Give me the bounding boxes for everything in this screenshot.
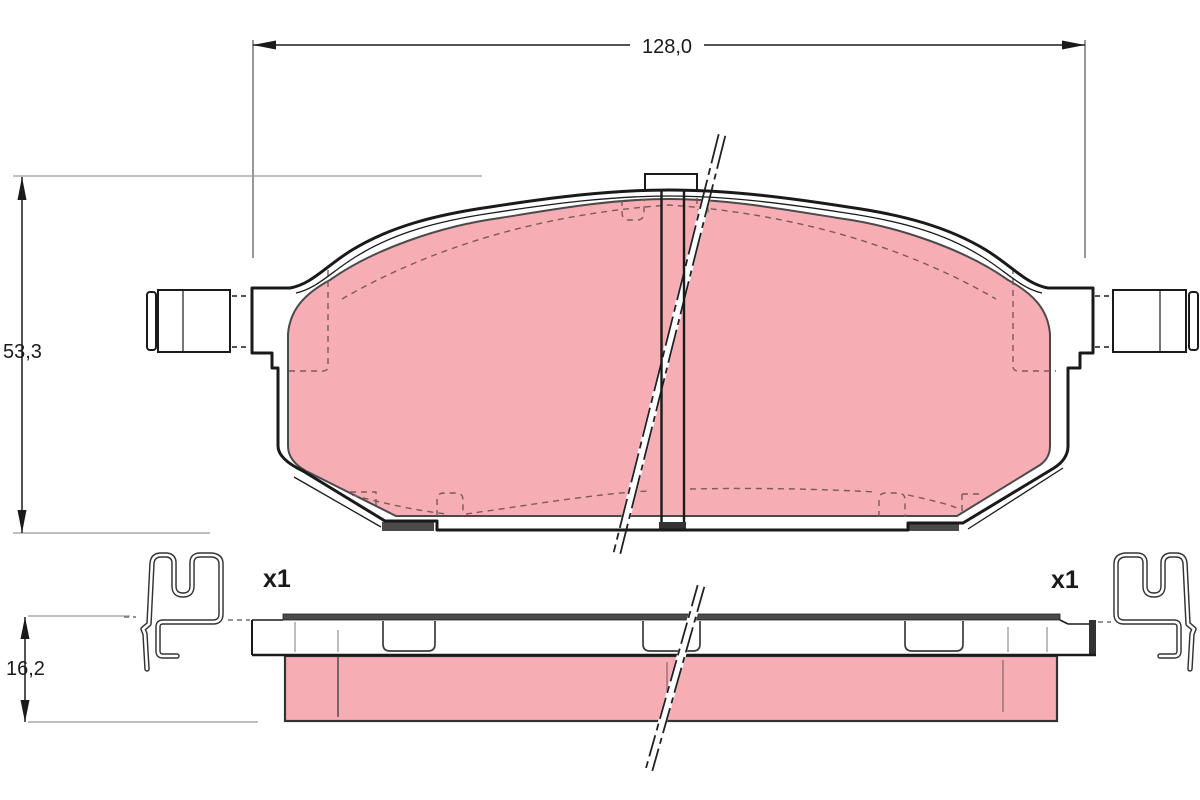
thickness-dimension-label: 16,2 — [6, 658, 45, 680]
right-guide-pin — [1095, 290, 1198, 352]
bottom-channel-shade-right — [907, 524, 959, 531]
backplate-side — [124, 614, 1111, 656]
brake-pad-diagram: 128,0 53,3 16,2 x1 x1 — [0, 0, 1200, 800]
right-spring-clip — [1116, 555, 1194, 669]
left-guide-pin — [147, 290, 250, 352]
pad-side-view — [124, 585, 1111, 771]
right-clip-quantity-label: x1 — [1051, 566, 1079, 594]
bottom-channel-shade-left — [382, 522, 434, 531]
technical-drawing-canvas: 128,0 53,3 16,2 x1 x1 — [0, 0, 1200, 800]
left-spring-clip — [143, 555, 221, 669]
height-dimension-label: 53,3 — [3, 341, 42, 363]
top-tab — [645, 174, 697, 191]
left-clip-quantity-label: x1 — [263, 565, 291, 593]
dimension-thickness: 16,2 — [6, 616, 258, 722]
width-dimension-label: 128,0 — [642, 36, 692, 58]
pad-front-view — [147, 134, 1198, 554]
